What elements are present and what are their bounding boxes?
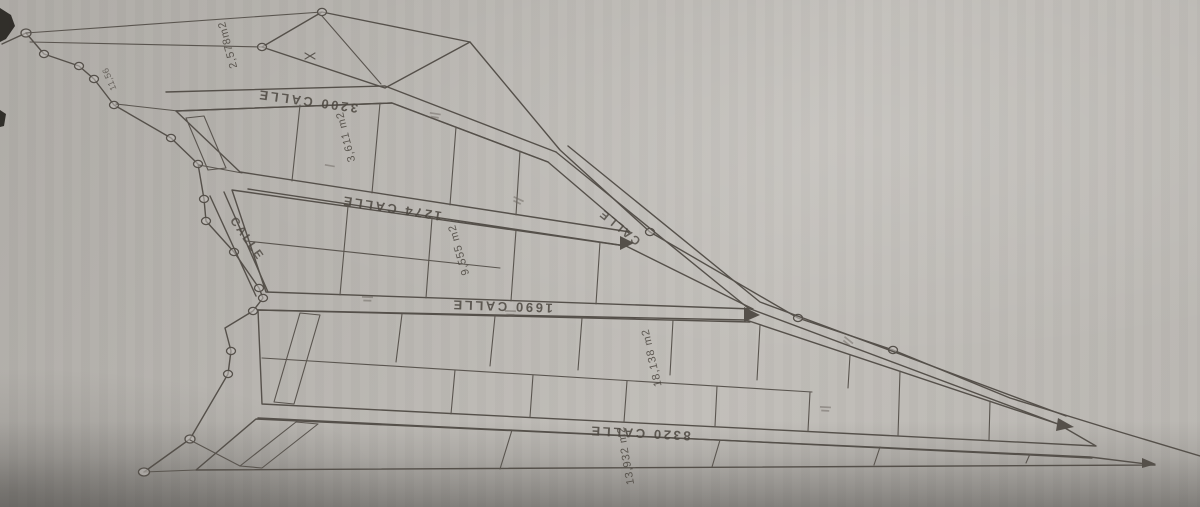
parcel-a-triangle bbox=[258, 8, 471, 88]
area-label-parcel-b: 3,611 m2 bbox=[334, 110, 358, 163]
area-label-parcel-d: 18,138 m2 bbox=[640, 327, 665, 387]
street-label-1274-calle: 1274 CALLE bbox=[340, 193, 443, 224]
area-label-parcel-a: 2,578m2 bbox=[216, 20, 240, 70]
boundary-fan-lines bbox=[26, 12, 322, 47]
plat-photo: 3200 CALLE 1274 CALLE 1690 CALLE 8320 CA… bbox=[0, 0, 1200, 507]
street-3200-band bbox=[166, 86, 556, 162]
photo-edge-speck bbox=[0, 110, 6, 127]
street-label-8320-calle: 8320 CALLE bbox=[589, 423, 692, 443]
dimension-label-11-56: 11,56 bbox=[100, 66, 119, 92]
street-label-1690-calle: 1690 CALLE bbox=[451, 297, 553, 316]
parcel-e-block bbox=[196, 419, 1156, 470]
plat-drawing: 3200 CALLE 1274 CALLE 1690 CALLE 8320 CA… bbox=[0, 0, 1200, 507]
area-label-parcel-c: 9,555 m2 bbox=[446, 223, 472, 277]
street-right-diagonal bbox=[556, 146, 1074, 431]
property-boundary-right bbox=[470, 42, 1200, 456]
street-arrowhead bbox=[1142, 458, 1156, 468]
photo-edge-shadow bbox=[0, 8, 15, 42]
parcel-c-block bbox=[232, 190, 753, 309]
property-boundary-left bbox=[2, 29, 268, 476]
parcel-d-block bbox=[258, 310, 1096, 446]
boundary-markers bbox=[21, 29, 268, 476]
